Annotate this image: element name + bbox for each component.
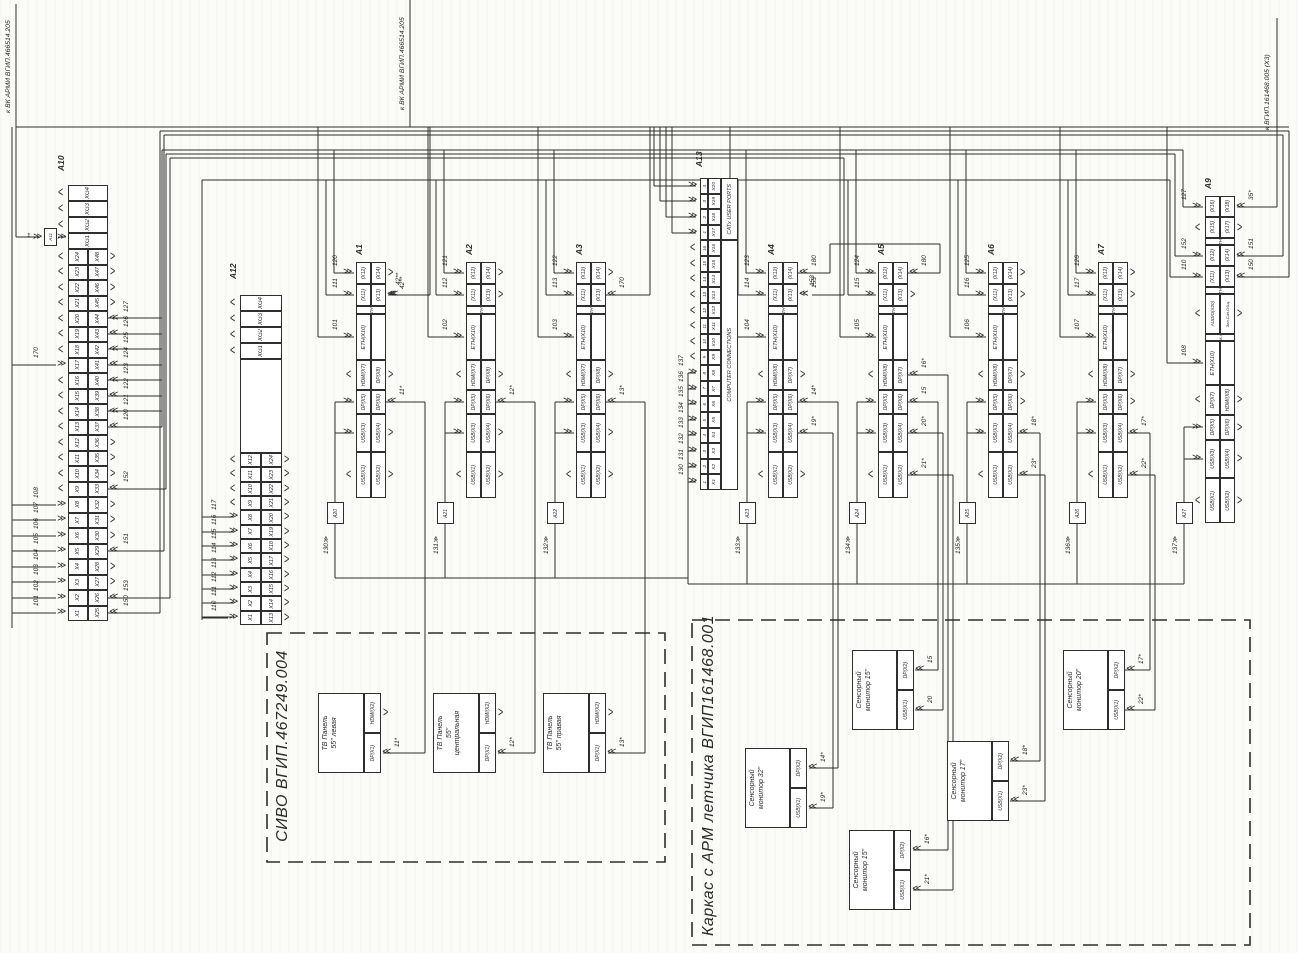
a13-conn-x15-label: X15: [712, 260, 717, 269]
wire-label-23*: 23*: [1028, 450, 1041, 476]
a12-conn-x2: X2: [240, 596, 261, 610]
wire-arrow: ≫: [1085, 267, 1093, 276]
a10-conn-x17-label: X17: [75, 360, 81, 370]
a3-port-dp-x5-label: DP(X5): [581, 394, 587, 410]
a10-conn-xg2: XG2: [68, 217, 108, 233]
schematic-sheet: к ВК АРМИ ВГИП.466514.205 к ВК АРМИ ВГИП…: [0, 0, 1298, 953]
a1-port-dp-x6: DP(X6): [371, 390, 386, 414]
a1-port-video-r: DP(X8): [371, 360, 386, 390]
a13-row-num-x15-label: 15: [702, 261, 707, 266]
a6-port-x11: (X11): [988, 284, 1003, 306]
a12-conn-x6: X6: [240, 539, 261, 553]
a10-conn-x26: X26: [88, 590, 108, 606]
a9-port-x14-label: (X14): [1225, 249, 1231, 261]
connector-fork: >: [498, 426, 503, 440]
a6-port-usb-x3: USB(X3): [988, 414, 1003, 452]
a13-row-num-x20: 4: [700, 178, 708, 194]
block-a27: А27: [1176, 502, 1193, 524]
a5-port-usb-x1: USB(X1): [878, 452, 893, 498]
a9-port-video-l-label: DP(X7): [1210, 392, 1216, 408]
a10-conn-x33: X33: [88, 482, 108, 498]
wire-label-21*: 21*: [918, 450, 931, 476]
wire-arrow: ≫: [343, 331, 351, 340]
a3-port-x12: (X12): [576, 262, 591, 284]
monitor-port-dp-mon-20-label: DP(X2): [1114, 662, 1120, 678]
wire-arrow: ≫: [57, 592, 65, 601]
block-id-a12: А12: [226, 258, 240, 284]
a13-conn-x9: X9: [708, 350, 721, 366]
connector-fork: <: [230, 296, 235, 310]
connector-fork: <: [456, 468, 461, 482]
a3-port-usb-x3: USB(X3): [576, 414, 591, 452]
a1-port-eth-x10-label: ETH(X10): [361, 325, 367, 349]
connector-fork: <: [58, 186, 63, 200]
a13-conn-x3-label: X3: [712, 448, 717, 454]
wire-arrow: ≫: [453, 331, 461, 340]
a13-row-num-x6: 6: [700, 396, 708, 412]
a9-port-x17-label: (X17): [1225, 221, 1231, 233]
wire-arrow: ≫: [453, 289, 461, 298]
a2-port-x14: (X14): [481, 262, 496, 284]
block-a23-label: А23: [745, 509, 751, 518]
a13-conn-x2: X2: [708, 459, 721, 475]
wire-arrow: ≫: [57, 232, 65, 241]
wire-arrow: ≪: [109, 313, 117, 322]
wire-arrow: ≫: [1192, 271, 1200, 280]
a10-conn-x15: X15: [68, 389, 88, 405]
connector-fork: >: [498, 266, 503, 280]
connector-fork: >: [388, 368, 393, 382]
wire-arrow: ≫: [343, 396, 351, 405]
a9-port-dp-x5: DP(X5): [1205, 415, 1220, 440]
a2-port-dp-x6: DP(X6): [481, 390, 496, 414]
a9-eth-note: ETH**: [1205, 238, 1235, 245]
a13-row-num-x2-label: 2: [702, 465, 707, 468]
monitor-port-usb-mon-15b-label: USB(X1): [900, 880, 906, 900]
a2-port-usb-x2: USB(X2): [481, 452, 496, 498]
connector-fork: >: [1237, 307, 1242, 321]
wire-label-170: 170: [616, 270, 629, 296]
a4-port-dp-x6-label: DP(X6): [788, 394, 794, 410]
wire-arrow: ≪: [799, 396, 807, 405]
wire-arrow: ≫: [229, 526, 237, 535]
a10-conn-x43: X43: [88, 327, 108, 343]
a12-conn-x24: X24: [261, 453, 282, 467]
wire-arrow: ≫: [1192, 422, 1200, 431]
a7-port-x12: (X12): [1098, 262, 1113, 284]
wire-label-115: 115: [851, 270, 864, 296]
connector-fork: >: [1020, 368, 1025, 382]
a10-conn-x34-label: X34: [95, 469, 101, 479]
tv-port-dp-tv-left: DP(X1): [364, 733, 381, 773]
a10-conn-x40-label: X40: [95, 376, 101, 386]
wire-arrow: ≫: [975, 331, 983, 340]
a3-port-x13: (X13): [591, 284, 606, 306]
a10-conn-x10: X10: [68, 466, 88, 482]
a13-conn-x12-label: X12: [712, 306, 717, 315]
a10-conn-x32-label: X32: [95, 500, 101, 510]
connector-fork: >: [388, 426, 393, 440]
a6-port-x12-label: (X12): [993, 267, 999, 279]
connector-fork: <: [456, 368, 461, 382]
connector-fork: <: [868, 368, 873, 382]
connector-fork: >: [1130, 395, 1135, 409]
a10-conn-x4: X4: [68, 559, 88, 575]
connector-fork: >: [1237, 220, 1242, 234]
a3-port-x11: (X11): [576, 284, 591, 306]
a5-port-x13: (X13): [893, 284, 908, 306]
monitor-port-usb-mon-17-label: USB(X1): [998, 791, 1004, 811]
tv-port-dp-tv-left-label: DP(X1): [370, 745, 376, 761]
a13-row-num-x17: 1: [700, 225, 708, 241]
connector-fork: <: [978, 368, 983, 382]
block-a25-label: А25: [965, 509, 971, 518]
a12-conn-x12: X12: [240, 453, 261, 467]
a2-port-usb-x3: USB(X3): [466, 414, 481, 452]
monitor-port-dp-mon-17: DP(X2): [992, 741, 1009, 781]
a7-port-video-r-label: DP(X7): [1118, 367, 1124, 383]
connector-fork: >: [388, 468, 393, 482]
tv-port-dp-tv-right: DP(X1): [589, 733, 606, 773]
a3-port-video-l: HDMI(X7): [576, 360, 591, 390]
a5-port-dp-x5: DP(X5): [878, 390, 893, 414]
a7-port-x11: (X11): [1098, 284, 1113, 306]
connector-fork: >: [1237, 420, 1242, 434]
wire-label-11*: 11*: [396, 377, 409, 403]
a13-row-num-x4-label: 4: [702, 434, 707, 437]
a7-port-dp-x6: DP(X6): [1113, 390, 1128, 414]
tv-port-dp-tv-center: DP(X1): [479, 733, 496, 773]
connector-fork: <: [690, 241, 695, 255]
wire-label-16*: 16*: [918, 350, 931, 376]
connector-fork: <: [346, 368, 351, 382]
tv-port-hdmi-tv-center: HDMI(X2): [479, 693, 496, 733]
connector-fork: <: [1088, 468, 1093, 482]
block-id-a3: А3: [572, 240, 586, 260]
a4-blank: [783, 314, 798, 360]
a4-port-usb-x3-label: USB(X3): [773, 423, 779, 443]
monitor-name-mon-15a: Сенсорныймонитор 15": [856, 653, 873, 727]
a9-port-eth-x10-label: ETH(X10): [1210, 351, 1216, 375]
a9-port-x11: (X11): [1205, 266, 1220, 287]
a10-conn-x42-label: X42: [95, 345, 101, 355]
connector-fork: >: [800, 468, 805, 482]
wire-arrow: ≪: [1236, 271, 1244, 280]
wire-arrow: ≫: [688, 414, 696, 423]
a10-conn-x44: X44: [88, 311, 108, 327]
a13-conn-x20-label: X20: [712, 182, 717, 191]
a6-port-x12: (X12): [988, 262, 1003, 284]
monitor-port-dp-mon-32: DP(X2): [790, 748, 807, 788]
a4-eth-note: ETH**: [768, 306, 798, 314]
a7-port-x13-label: (X13): [1118, 289, 1124, 301]
wire-arrow: ≪: [1019, 427, 1027, 436]
wire-label-11*: 11*: [391, 729, 404, 755]
a12-conn-x23: X23: [261, 467, 282, 481]
a13-conn-x2-label: X2: [712, 464, 717, 470]
wire-arrow: ≪: [109, 421, 117, 430]
wire-label-136: 136≫: [1062, 530, 1075, 560]
a5-port-x14: (X14): [893, 262, 908, 284]
wire-arrow: ≪: [1010, 755, 1018, 764]
wire-label-103: 103: [549, 312, 562, 338]
monitor-port-usb-mon-15a: USB(X1): [897, 690, 914, 730]
a5-port-video-l: HDMI(X8): [878, 360, 893, 390]
a2-port-usb-x1-label: USB(X1): [471, 465, 477, 485]
a10-conn-x10-label: X10: [75, 469, 81, 479]
a13-conn-x1-label: X1: [712, 479, 717, 485]
connector-fork: >: [110, 451, 115, 465]
a13-row-num-x7: 7: [700, 381, 708, 397]
wire-arrow: ≫: [453, 427, 461, 436]
a10-conn-x24-label: X24: [75, 252, 81, 262]
a7-port-x14: (X14): [1113, 262, 1128, 284]
wire-label-113: 113: [549, 270, 562, 296]
block-id-a10: А10: [54, 150, 68, 176]
block-a23: А23: [739, 502, 756, 524]
a9-port-x12: (X12): [1205, 245, 1220, 266]
wire-arrow: ≫: [563, 427, 571, 436]
a2-eth-note: ETH**: [466, 306, 496, 314]
connector-fork: <: [690, 272, 695, 286]
a9-port-video-l: DP(X7): [1205, 385, 1220, 415]
a1-port-x13-label: (X13): [376, 289, 382, 301]
wire-label-135: 135≫: [952, 530, 965, 560]
wire-arrow: ≫: [343, 267, 351, 276]
block-id-a13: А13: [692, 146, 706, 172]
a6-blank: [1003, 314, 1018, 360]
wire-arrow: ≪: [109, 328, 117, 337]
a13-row-num-x16: 16: [700, 240, 708, 256]
block-a22: А22: [547, 502, 564, 524]
wire-label-22*: 22*: [1138, 450, 1151, 476]
a13-row-num-x19-label: 3: [702, 200, 707, 203]
a3-port-video-r: DP(X8): [591, 360, 606, 390]
a1-port-usb-x2-label: USB(X2): [376, 465, 382, 485]
connector-fork: >: [608, 368, 613, 382]
connector-fork: >: [1020, 395, 1025, 409]
a6-port-usb-x2-label: USB(X2): [1008, 465, 1014, 485]
a6-port-x13-label: (X13): [1008, 289, 1014, 301]
a1-port-usb-x2: USB(X2): [371, 452, 386, 498]
a1-port-usb-x3-label: USB(X3): [361, 423, 367, 443]
wire-arrow: ≪: [109, 483, 117, 492]
a10-conn-x25-label: X25: [95, 608, 101, 618]
tv-panel-name-tv-right: ТВ Панель55" правая: [547, 696, 564, 770]
monitor-name-mon-15b: Сенсорныймонитор 15": [853, 833, 870, 907]
connector-fork: <: [58, 389, 63, 403]
a1-port-x11: (X11): [356, 284, 371, 306]
wire-label-134: 134≫: [842, 530, 855, 560]
wire-label-12*: 12*: [506, 377, 519, 403]
wire-arrow: ≫: [755, 427, 763, 436]
a10-conn-x22: X22: [68, 280, 88, 296]
a4-port-video-r-label: DP(X7): [788, 367, 794, 383]
wire-label-117: 117: [1071, 270, 1084, 296]
a6-port-usb-x2: USB(X2): [1003, 452, 1018, 498]
a7-port-x12-label: (X12): [1103, 267, 1109, 279]
a5-port-usb-x2: USB(X2): [893, 452, 908, 498]
a9-port-audio-x20-label: AUDIO(X20): [1210, 301, 1215, 326]
a1-port-dp-x5-label: DP(X5): [361, 394, 367, 410]
a13-caption-computer-connections: COMPUTER CONNECTIONS: [721, 240, 738, 490]
connector-fork: <: [1195, 493, 1200, 507]
a7-port-usb-x4: USB(X4): [1113, 414, 1128, 452]
a7-port-usb-x1-label: USB(X1): [1103, 465, 1109, 485]
a12-conn-x13: X13: [261, 611, 282, 625]
wire-label-153-a4: 153: [806, 268, 819, 294]
a5-port-eth-x10-label: ETH(X10): [883, 325, 889, 349]
a10-conn-x14: X14: [68, 404, 88, 420]
a10-conn-x17: X17: [68, 358, 88, 374]
a13-conn-x6-label: X6: [712, 401, 717, 407]
wire-arrow: ≫: [688, 195, 696, 204]
a10-conn-x38: X38: [88, 404, 108, 420]
a2-port-video-l: HDMI(X7): [466, 360, 481, 390]
a13-conn-x13-label: X13: [712, 291, 717, 300]
a7-port-x13: (X13): [1113, 284, 1128, 306]
wire-arrow: ≫: [755, 396, 763, 405]
wire-arrow: ≫: [563, 331, 571, 340]
a13-row-num-x13-label: 13: [702, 292, 707, 297]
wire-arrow: ≫: [453, 267, 461, 276]
a12-conn-x14-label: X14: [269, 599, 275, 609]
wire-arrow: ≫: [1192, 250, 1200, 259]
a12-conn-x9: X9: [240, 496, 261, 510]
a6-port-x14-label: (X14): [1008, 267, 1014, 279]
a7-port-video-l-label: HDMI(X8): [1103, 364, 1109, 386]
a10-conn-x20: X20: [68, 311, 88, 327]
a9-port-video-r: HDMI(X8): [1220, 385, 1235, 415]
a10-conn-x12: X12: [68, 435, 88, 451]
wire-label-150: 150: [1245, 252, 1258, 278]
a9-port-usb-x2-label: USB(X2): [1225, 491, 1231, 511]
a10-conn-x27: X27: [88, 575, 108, 591]
a13-conn-x14-label: X14: [712, 275, 717, 284]
a10-conn-x6-label: X6: [75, 532, 81, 539]
a10-conn-x37-label: X37: [95, 422, 101, 432]
a9-port-usb-x2: USB(X2): [1220, 478, 1235, 523]
connector-fork: <: [58, 202, 63, 216]
wire-arrow: ≪: [1129, 469, 1137, 478]
wire-arrow: ≪: [808, 802, 816, 811]
block-a24-label: А24: [855, 509, 861, 518]
tv-panel-name-tv-left: ТВ Панель55" левая: [322, 696, 339, 770]
a4-eth-note-label: ETH**: [781, 306, 786, 314]
a13-row-num-x17-label: 1: [702, 231, 707, 234]
wire-arrow: ≫: [57, 576, 65, 585]
a13-row-num-x10: 10: [700, 334, 708, 350]
a10-conn-x13-label: X13: [75, 422, 81, 432]
block-a11: А11: [44, 228, 57, 246]
block-id-a2: А2: [462, 240, 476, 260]
monitor-port-dp-mon-17-label: DP(X2): [998, 753, 1004, 769]
a1-port-x12-label: (X12): [361, 267, 367, 279]
wire-arrow: ≪: [497, 747, 505, 756]
connector-fork: <: [230, 482, 235, 496]
connector-fork: >: [110, 296, 115, 310]
a13-conn-x17-label: X17: [712, 228, 717, 237]
a10-conn-x16-label: X16: [75, 376, 81, 386]
connector-fork: <: [978, 468, 983, 482]
connector-fork: >: [1237, 393, 1242, 407]
connector-fork: <: [58, 312, 63, 326]
connector-fork: <: [690, 257, 695, 271]
a12-conn-x11: X11: [240, 467, 261, 481]
a12-conn-x23-label: X23: [269, 470, 275, 480]
a12-conn-xg3: XG3: [240, 311, 282, 327]
connector-fork: >: [1130, 266, 1135, 280]
a13-row-num-x6-label: 6: [702, 403, 707, 406]
a9-port-audio-x20: AUDIO(X20): [1205, 294, 1220, 334]
a13-conn-x14: X14: [708, 272, 721, 288]
wire-arrow: ≪: [1236, 250, 1244, 259]
wire-label-110: 110: [1178, 252, 1191, 278]
a10-conn-x8: X8: [68, 497, 88, 513]
a3-port-usb-x1-label: USB(X1): [581, 465, 587, 485]
a1-eth-note-label: ETH**: [369, 306, 374, 314]
a10-conn-x39-label: X39: [95, 391, 101, 401]
wire-arrow: ≪: [109, 390, 117, 399]
connector-fork: >: [284, 510, 289, 524]
a9-port-x16-label: (X16): [1210, 200, 1216, 212]
a13-row-num-x15: 15: [700, 256, 708, 272]
a4-port-x13-label: (X13): [788, 289, 794, 301]
connector-fork: >: [498, 468, 503, 482]
a12-conn-x16-label: X16: [269, 570, 275, 580]
a12-conn-x14: X14: [261, 596, 282, 610]
wire-label-14*: 14*: [808, 377, 821, 403]
a13-row-num-x13: 13: [700, 287, 708, 303]
a12-conn-x19-label: X19: [269, 527, 275, 537]
wire-label-130: 130: [675, 457, 688, 483]
a5-port-x12: (X12): [878, 262, 893, 284]
connector-fork: <: [690, 350, 695, 364]
a10-conn-x19-label: X19: [75, 329, 81, 339]
wire-arrow: ≪: [382, 747, 390, 756]
a10-conn-x29: X29: [88, 544, 108, 560]
a10-conn-x3: X3: [68, 575, 88, 591]
a3-port-dp-x6: DP(X6): [591, 390, 606, 414]
tv-port-dp-tv-right-label: DP(X1): [595, 745, 601, 761]
wire-label-20: 20: [924, 686, 937, 712]
wire-arrow: ≫: [1192, 201, 1200, 210]
a6-port-usb-x4-label: USB(X4): [1008, 423, 1014, 443]
a3-port-dp-x6-label: DP(X6): [596, 394, 602, 410]
a12-conn-x19: X19: [261, 525, 282, 539]
a13-conn-x19: X19: [708, 194, 721, 210]
wire-arrow: ≪: [607, 396, 615, 405]
a13-conn-x17: X17: [708, 225, 721, 241]
wire-arrow: ≫: [688, 429, 696, 438]
wire-arrow: ≫: [688, 476, 696, 485]
connector-fork: >: [1237, 452, 1242, 466]
a10-conn-x11-label: X11: [75, 454, 81, 463]
a4-port-usb-x1: USB(X1): [768, 452, 783, 498]
connector-fork: <: [58, 327, 63, 341]
wire-arrow: ≪: [109, 545, 117, 554]
wire-label-19*: 19*: [808, 408, 821, 434]
a7-port-eth-x10: ETH(X10): [1098, 314, 1113, 360]
a9-port-usb-x4: USB(X4): [1220, 440, 1235, 478]
a9-port-dp-x5-label: DP(X5): [1210, 419, 1216, 435]
a12-conn-x5-label: X5: [248, 557, 254, 564]
wire-label-111: 111: [329, 270, 342, 296]
connector-fork: >: [498, 368, 503, 382]
tv-port-hdmi-tv-left: HDMI(X2): [364, 693, 381, 733]
a13-row-num-x9-label: 9: [702, 356, 707, 359]
a12-conn-xg4: XG4: [240, 295, 282, 311]
